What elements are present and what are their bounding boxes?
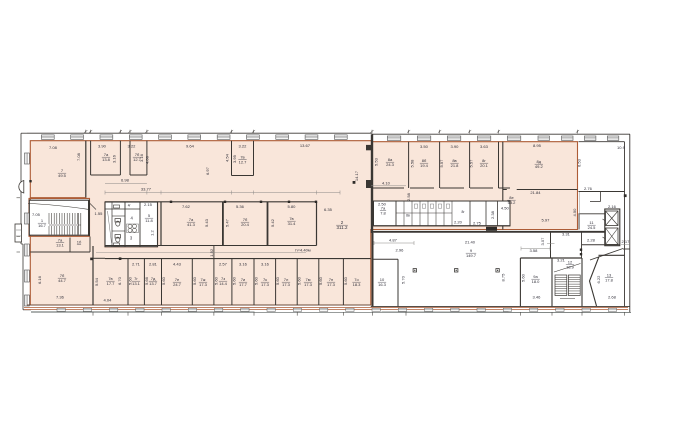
svg-text:20.1: 20.1 bbox=[480, 163, 489, 168]
svg-text:3.07: 3.07 bbox=[540, 237, 545, 246]
svg-text:49.5: 49.5 bbox=[58, 173, 67, 178]
svg-text:5.70: 5.70 bbox=[401, 275, 406, 284]
svg-text:1.2: 1.2 bbox=[150, 229, 155, 235]
svg-text:13.8: 13.8 bbox=[102, 157, 111, 162]
svg-text:10.9: 10.9 bbox=[617, 145, 626, 150]
svg-text:44.7: 44.7 bbox=[58, 278, 67, 283]
svg-text:6.35: 6.35 bbox=[324, 207, 333, 212]
svg-text:2.58: 2.58 bbox=[406, 192, 411, 201]
svg-text:4.87: 4.87 bbox=[389, 237, 398, 242]
svg-text:3.22: 3.22 bbox=[128, 144, 137, 149]
svg-text:1.55: 1.55 bbox=[95, 211, 104, 216]
svg-text:5.53: 5.53 bbox=[374, 157, 379, 166]
svg-text:3.95: 3.95 bbox=[232, 154, 237, 163]
svg-text:5.57: 5.57 bbox=[469, 159, 474, 168]
svg-text:7.05: 7.05 bbox=[32, 212, 41, 217]
svg-text:21.8: 21.8 bbox=[451, 163, 460, 168]
svg-text:5.60: 5.60 bbox=[161, 276, 166, 285]
svg-text:12.7: 12.7 bbox=[239, 160, 248, 165]
svg-text:5.60: 5.60 bbox=[343, 276, 348, 285]
svg-text:5.47: 5.47 bbox=[225, 218, 230, 227]
svg-text:19.4: 19.4 bbox=[420, 163, 429, 168]
svg-text:3.50: 3.50 bbox=[420, 144, 429, 149]
svg-text:11.8: 11.8 bbox=[145, 218, 153, 223]
svg-text:2.28: 2.28 bbox=[587, 238, 596, 243]
svg-text:5.42: 5.42 bbox=[270, 218, 275, 227]
svg-text:4.50: 4.50 bbox=[501, 206, 510, 211]
svg-text:5.80: 5.80 bbox=[288, 204, 297, 209]
svg-text:20.4: 20.4 bbox=[241, 222, 250, 227]
svg-text:h=4.40м: h=4.40м bbox=[295, 247, 310, 252]
svg-text:16.7: 16.7 bbox=[38, 223, 47, 228]
svg-text:9.64: 9.64 bbox=[186, 144, 195, 149]
svg-text:3.16: 3.16 bbox=[239, 262, 248, 267]
svg-text:18.9: 18.9 bbox=[566, 265, 575, 270]
svg-text:21.40: 21.40 bbox=[465, 240, 476, 245]
svg-text:311.2: 311.2 bbox=[337, 225, 348, 230]
svg-text:5.60: 5.60 bbox=[254, 276, 259, 285]
svg-text:4.10: 4.10 bbox=[382, 181, 391, 186]
svg-text:3.16: 3.16 bbox=[261, 262, 270, 267]
svg-text:4.43: 4.43 bbox=[173, 262, 182, 267]
svg-text:17.3: 17.3 bbox=[282, 282, 291, 287]
svg-text:5.58: 5.58 bbox=[410, 159, 415, 168]
svg-text:5.60: 5.60 bbox=[297, 276, 302, 285]
svg-text:6.70: 6.70 bbox=[117, 276, 122, 285]
svg-text:2.20: 2.20 bbox=[454, 220, 463, 225]
svg-text:5.54: 5.54 bbox=[94, 277, 99, 286]
svg-text:3.21: 3.21 bbox=[557, 258, 566, 263]
svg-text:5.60: 5.60 bbox=[232, 276, 237, 285]
svg-text:17.7: 17.7 bbox=[107, 281, 116, 286]
svg-text:31.4: 31.4 bbox=[288, 221, 297, 226]
svg-text:7.62: 7.62 bbox=[182, 204, 191, 209]
svg-text:12.7: 12.7 bbox=[133, 157, 142, 162]
svg-text:1б: 1б bbox=[77, 240, 82, 245]
svg-text:24.5: 24.5 bbox=[588, 225, 597, 230]
svg-text:17.8: 17.8 bbox=[605, 278, 614, 283]
svg-text:8.95: 8.95 bbox=[533, 143, 542, 148]
svg-text:13.1: 13.1 bbox=[56, 243, 65, 248]
svg-text:21.84: 21.84 bbox=[530, 190, 541, 195]
svg-text:5.60: 5.60 bbox=[521, 273, 526, 282]
svg-text:17.3: 17.3 bbox=[327, 282, 336, 287]
svg-text:17.3: 17.3 bbox=[304, 282, 313, 287]
svg-text:14.4: 14.4 bbox=[219, 281, 228, 286]
svg-text:5.43: 5.43 bbox=[204, 218, 209, 227]
svg-text:5.60: 5.60 bbox=[318, 276, 323, 285]
svg-text:3.90: 3.90 bbox=[98, 144, 107, 149]
svg-text:149.7: 149.7 bbox=[466, 253, 477, 258]
svg-text:5.60: 5.60 bbox=[192, 276, 197, 285]
svg-text:6.98: 6.98 bbox=[121, 178, 130, 183]
svg-text:24.7: 24.7 bbox=[173, 282, 182, 287]
svg-text:3.63: 3.63 bbox=[480, 144, 489, 149]
svg-text:5.97: 5.97 bbox=[541, 218, 550, 223]
svg-text:1.52: 1.52 bbox=[209, 248, 214, 257]
svg-text:6.53: 6.53 bbox=[576, 158, 581, 167]
svg-text:49.2: 49.2 bbox=[535, 164, 544, 169]
svg-text:2.68: 2.68 bbox=[608, 295, 617, 300]
svg-text:5.60: 5.60 bbox=[214, 276, 219, 285]
svg-text:7.8: 7.8 bbox=[380, 211, 386, 216]
svg-text:17.3: 17.3 bbox=[261, 282, 270, 287]
svg-text:2.15: 2.15 bbox=[144, 202, 153, 207]
svg-text:4.04: 4.04 bbox=[104, 298, 113, 303]
svg-text:53.2: 53.2 bbox=[508, 200, 517, 205]
svg-text:13.7: 13.7 bbox=[149, 281, 158, 286]
svg-text:2.16: 2.16 bbox=[608, 204, 617, 209]
svg-text:3.90: 3.90 bbox=[451, 144, 460, 149]
svg-text:7.08: 7.08 bbox=[76, 152, 81, 161]
svg-text:2.57: 2.57 bbox=[219, 262, 228, 267]
svg-text:2.81: 2.81 bbox=[149, 262, 158, 267]
svg-text:2.96: 2.96 bbox=[396, 248, 405, 253]
svg-text:13.67: 13.67 bbox=[300, 143, 311, 148]
svg-text:3.46: 3.46 bbox=[533, 295, 542, 300]
svg-text:2.75: 2.75 bbox=[473, 221, 482, 226]
svg-text:2.76: 2.76 bbox=[584, 186, 593, 191]
svg-text:14.17: 14.17 bbox=[354, 170, 359, 181]
svg-text:2.17: 2.17 bbox=[622, 239, 631, 244]
svg-text:6.16: 6.16 bbox=[37, 275, 42, 284]
svg-text:7.08: 7.08 bbox=[49, 145, 58, 150]
svg-text:41.3: 41.3 bbox=[187, 222, 196, 227]
svg-text:5.60: 5.60 bbox=[275, 276, 280, 285]
svg-text:3.31: 3.31 bbox=[562, 232, 571, 237]
svg-text:16.3: 16.3 bbox=[378, 282, 387, 287]
svg-text:13.1: 13.1 bbox=[132, 281, 141, 286]
svg-text:17.3: 17.3 bbox=[199, 282, 208, 287]
svg-text:2.38: 2.38 bbox=[490, 210, 495, 219]
svg-text:33.77: 33.77 bbox=[141, 186, 152, 191]
svg-text:24.3: 24.3 bbox=[386, 162, 395, 167]
svg-text:4.50: 4.50 bbox=[572, 208, 577, 217]
svg-text:18.0: 18.0 bbox=[532, 279, 541, 284]
svg-text:8.75: 8.75 bbox=[501, 273, 506, 282]
svg-text:5.36: 5.36 bbox=[236, 204, 245, 209]
svg-text:17.7: 17.7 bbox=[239, 282, 248, 287]
svg-text:18.3: 18.3 bbox=[353, 282, 362, 287]
svg-text:7.36: 7.36 bbox=[56, 295, 65, 300]
svg-text:3.16: 3.16 bbox=[112, 154, 117, 163]
svg-text:6.97: 6.97 bbox=[205, 166, 210, 175]
svg-text:3.22: 3.22 bbox=[239, 144, 248, 149]
svg-text:4.54: 4.54 bbox=[225, 153, 230, 162]
svg-text:2.71: 2.71 bbox=[132, 262, 141, 267]
svg-text:6.22: 6.22 bbox=[596, 275, 601, 284]
svg-text:4.06: 4.06 bbox=[145, 155, 150, 164]
svg-text:8в: 8в bbox=[406, 214, 410, 218]
svg-text:5.57: 5.57 bbox=[439, 159, 444, 168]
svg-text:3.58: 3.58 bbox=[530, 248, 539, 253]
